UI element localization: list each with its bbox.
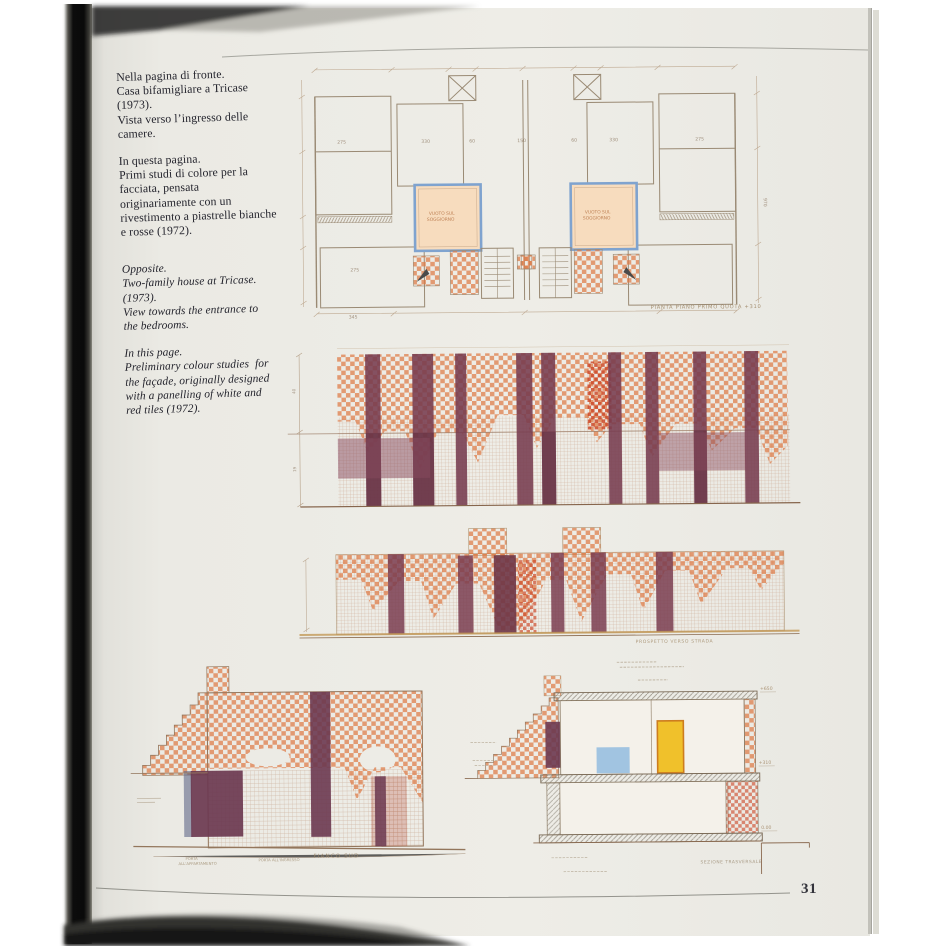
footer-rule (96, 888, 790, 897)
top-left-shadow (92, 6, 480, 36)
scan-artifacts-layer (0, 0, 946, 946)
book-scan-page: 275 330 60 150 60 330 275 275 345 970 VU… (0, 0, 946, 946)
bottom-left-shadow (64, 914, 470, 946)
right-page-edge (868, 8, 879, 934)
top-page-curl-line (222, 47, 868, 57)
